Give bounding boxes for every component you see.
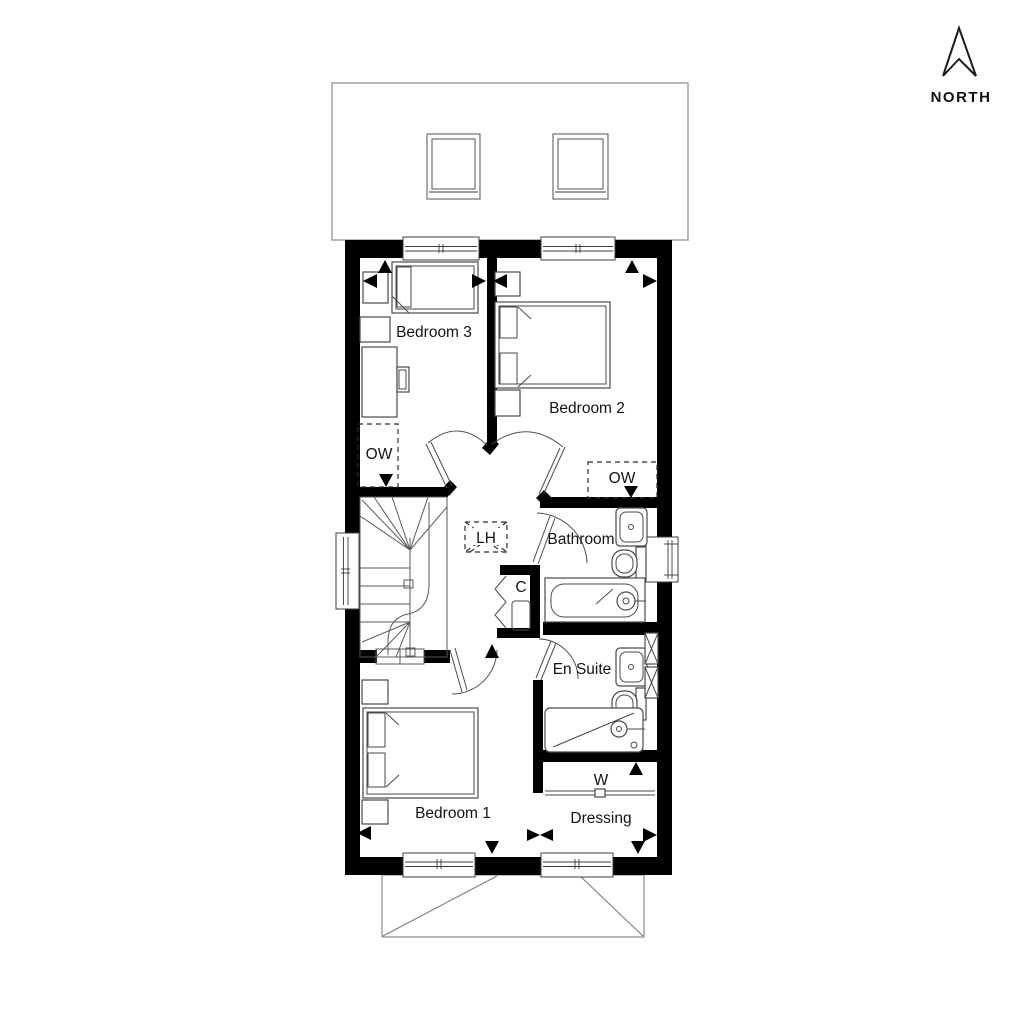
dimension-arrow bbox=[629, 762, 643, 775]
toilet-icon bbox=[612, 547, 646, 579]
room-label-bedroom-2: Bedroom 2 bbox=[549, 400, 625, 417]
window bbox=[336, 533, 359, 609]
annotation-label-ow: OW bbox=[366, 446, 393, 463]
annotation-label-ow: OW bbox=[609, 470, 636, 487]
dimension-arrow bbox=[485, 841, 499, 854]
annotation-label-lh: LH bbox=[476, 530, 496, 547]
dimension-arrow bbox=[540, 829, 553, 841]
double-bed-icon bbox=[363, 708, 478, 798]
dimension-arrow bbox=[643, 274, 657, 288]
window bbox=[403, 237, 479, 260]
window bbox=[646, 537, 678, 582]
door-swing bbox=[492, 432, 565, 494]
dimension-arrow bbox=[472, 274, 486, 288]
wardrobe-front bbox=[545, 789, 655, 797]
room-label-bedroom-1: Bedroom 1 bbox=[415, 805, 491, 822]
room-label-bedroom-3: Bedroom 3 bbox=[396, 324, 472, 341]
dimension-arrow bbox=[378, 260, 392, 273]
bedside-table-icon bbox=[495, 272, 520, 296]
dimension-arrow bbox=[527, 829, 540, 841]
rooflight-icon bbox=[427, 134, 480, 199]
sink-icon bbox=[616, 648, 647, 686]
bath-icon bbox=[545, 578, 646, 622]
north-label: NORTH bbox=[931, 89, 992, 106]
window bbox=[541, 853, 613, 877]
room-label-bathroom: Bathroom bbox=[547, 531, 614, 548]
desk-icon bbox=[362, 347, 409, 417]
stairs bbox=[360, 497, 447, 664]
room-label-en-suite: En Suite bbox=[553, 661, 612, 678]
rooflight-icon bbox=[553, 134, 608, 199]
double-bed-icon bbox=[495, 302, 610, 388]
shower-icon bbox=[545, 708, 645, 752]
dimension-arrow bbox=[625, 260, 639, 273]
window bbox=[541, 237, 615, 260]
annotation-label-w: W bbox=[594, 772, 609, 789]
room-label-dressing: Dressing bbox=[570, 810, 631, 827]
annotation-label-c: C bbox=[515, 579, 526, 596]
single-bed-icon bbox=[392, 262, 478, 313]
dimension-arrow bbox=[643, 828, 657, 842]
canopy-roof bbox=[382, 875, 644, 937]
window bbox=[403, 853, 475, 877]
dimension-arrow bbox=[379, 474, 393, 487]
dimension-arrow bbox=[624, 486, 638, 498]
chest-icon bbox=[360, 317, 390, 342]
floor-plan-page: Bedroom 3 Bedroom 2 Bathroom En Suite Be… bbox=[0, 0, 1020, 1020]
bedside-table-icon bbox=[362, 680, 388, 704]
bedside-table-icon bbox=[362, 800, 388, 824]
door-swing bbox=[426, 431, 487, 488]
roof-outline bbox=[332, 83, 688, 240]
north-arrow: NORTH bbox=[931, 28, 992, 106]
sink-icon bbox=[616, 508, 647, 546]
north-arrow-icon bbox=[943, 28, 976, 76]
floor-plan-drawing: Bedroom 3 Bedroom 2 Bathroom En Suite Be… bbox=[0, 0, 1020, 1020]
dimension-arrow bbox=[631, 841, 645, 854]
bedside-table-icon bbox=[495, 390, 520, 416]
